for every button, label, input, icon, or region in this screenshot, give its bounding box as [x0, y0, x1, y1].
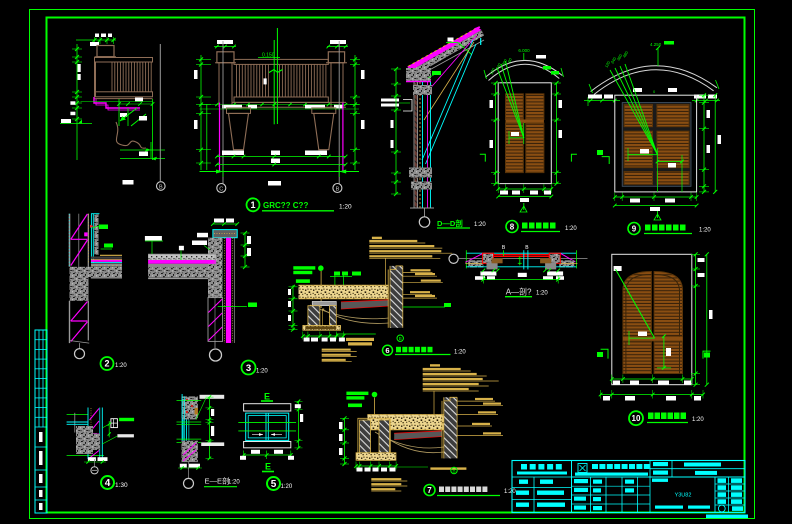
svg-text:1:20: 1:20	[228, 480, 240, 486]
svg-text:1:20: 1:20	[115, 363, 127, 369]
svg-text:1:20: 1:20	[536, 291, 548, 297]
svg-text:E—E剖: E—E剖	[205, 476, 230, 486]
svg-text:1:20: 1:20	[281, 484, 293, 490]
svg-text:1:20: 1:20	[474, 222, 486, 228]
svg-text:1:20: 1:20	[692, 417, 704, 423]
svg-text:1:20: 1:20	[256, 369, 268, 375]
svg-text:A—剖?: A—剖?	[506, 287, 532, 297]
svg-text:6: 6	[385, 346, 389, 355]
svg-text:1:30: 1:30	[115, 482, 128, 489]
svg-text:E: E	[264, 392, 270, 402]
svg-text:6.000: 6.000	[518, 48, 530, 53]
svg-text:1: 1	[250, 200, 255, 210]
svg-text:B: B	[399, 336, 402, 341]
svg-text:2: 2	[104, 359, 109, 369]
svg-text:B: B	[159, 184, 163, 190]
svg-text:3: 3	[246, 363, 251, 374]
svg-text:C: C	[219, 186, 223, 192]
svg-text:1:20: 1:20	[699, 228, 711, 234]
svg-text:D—D剖: D—D剖	[437, 218, 463, 228]
svg-text:1:20: 1:20	[454, 350, 466, 356]
svg-text:B: B	[336, 186, 340, 192]
svg-text:E: E	[265, 462, 271, 472]
svg-text:GRC?? C??: GRC?? C??	[263, 201, 308, 210]
svg-text:B: B	[452, 469, 455, 474]
svg-text:9: 9	[632, 224, 637, 233]
svg-text:Y3U82: Y3U82	[675, 493, 692, 499]
svg-text:1:20: 1:20	[504, 489, 516, 495]
svg-text:5: 5	[271, 479, 277, 490]
svg-text:1:20: 1:20	[339, 204, 352, 211]
svg-text:4: 4	[105, 478, 111, 489]
svg-text:10: 10	[632, 414, 641, 423]
svg-text:8: 8	[510, 222, 515, 231]
svg-text:1:20: 1:20	[565, 226, 577, 232]
svg-text:7: 7	[427, 486, 432, 495]
